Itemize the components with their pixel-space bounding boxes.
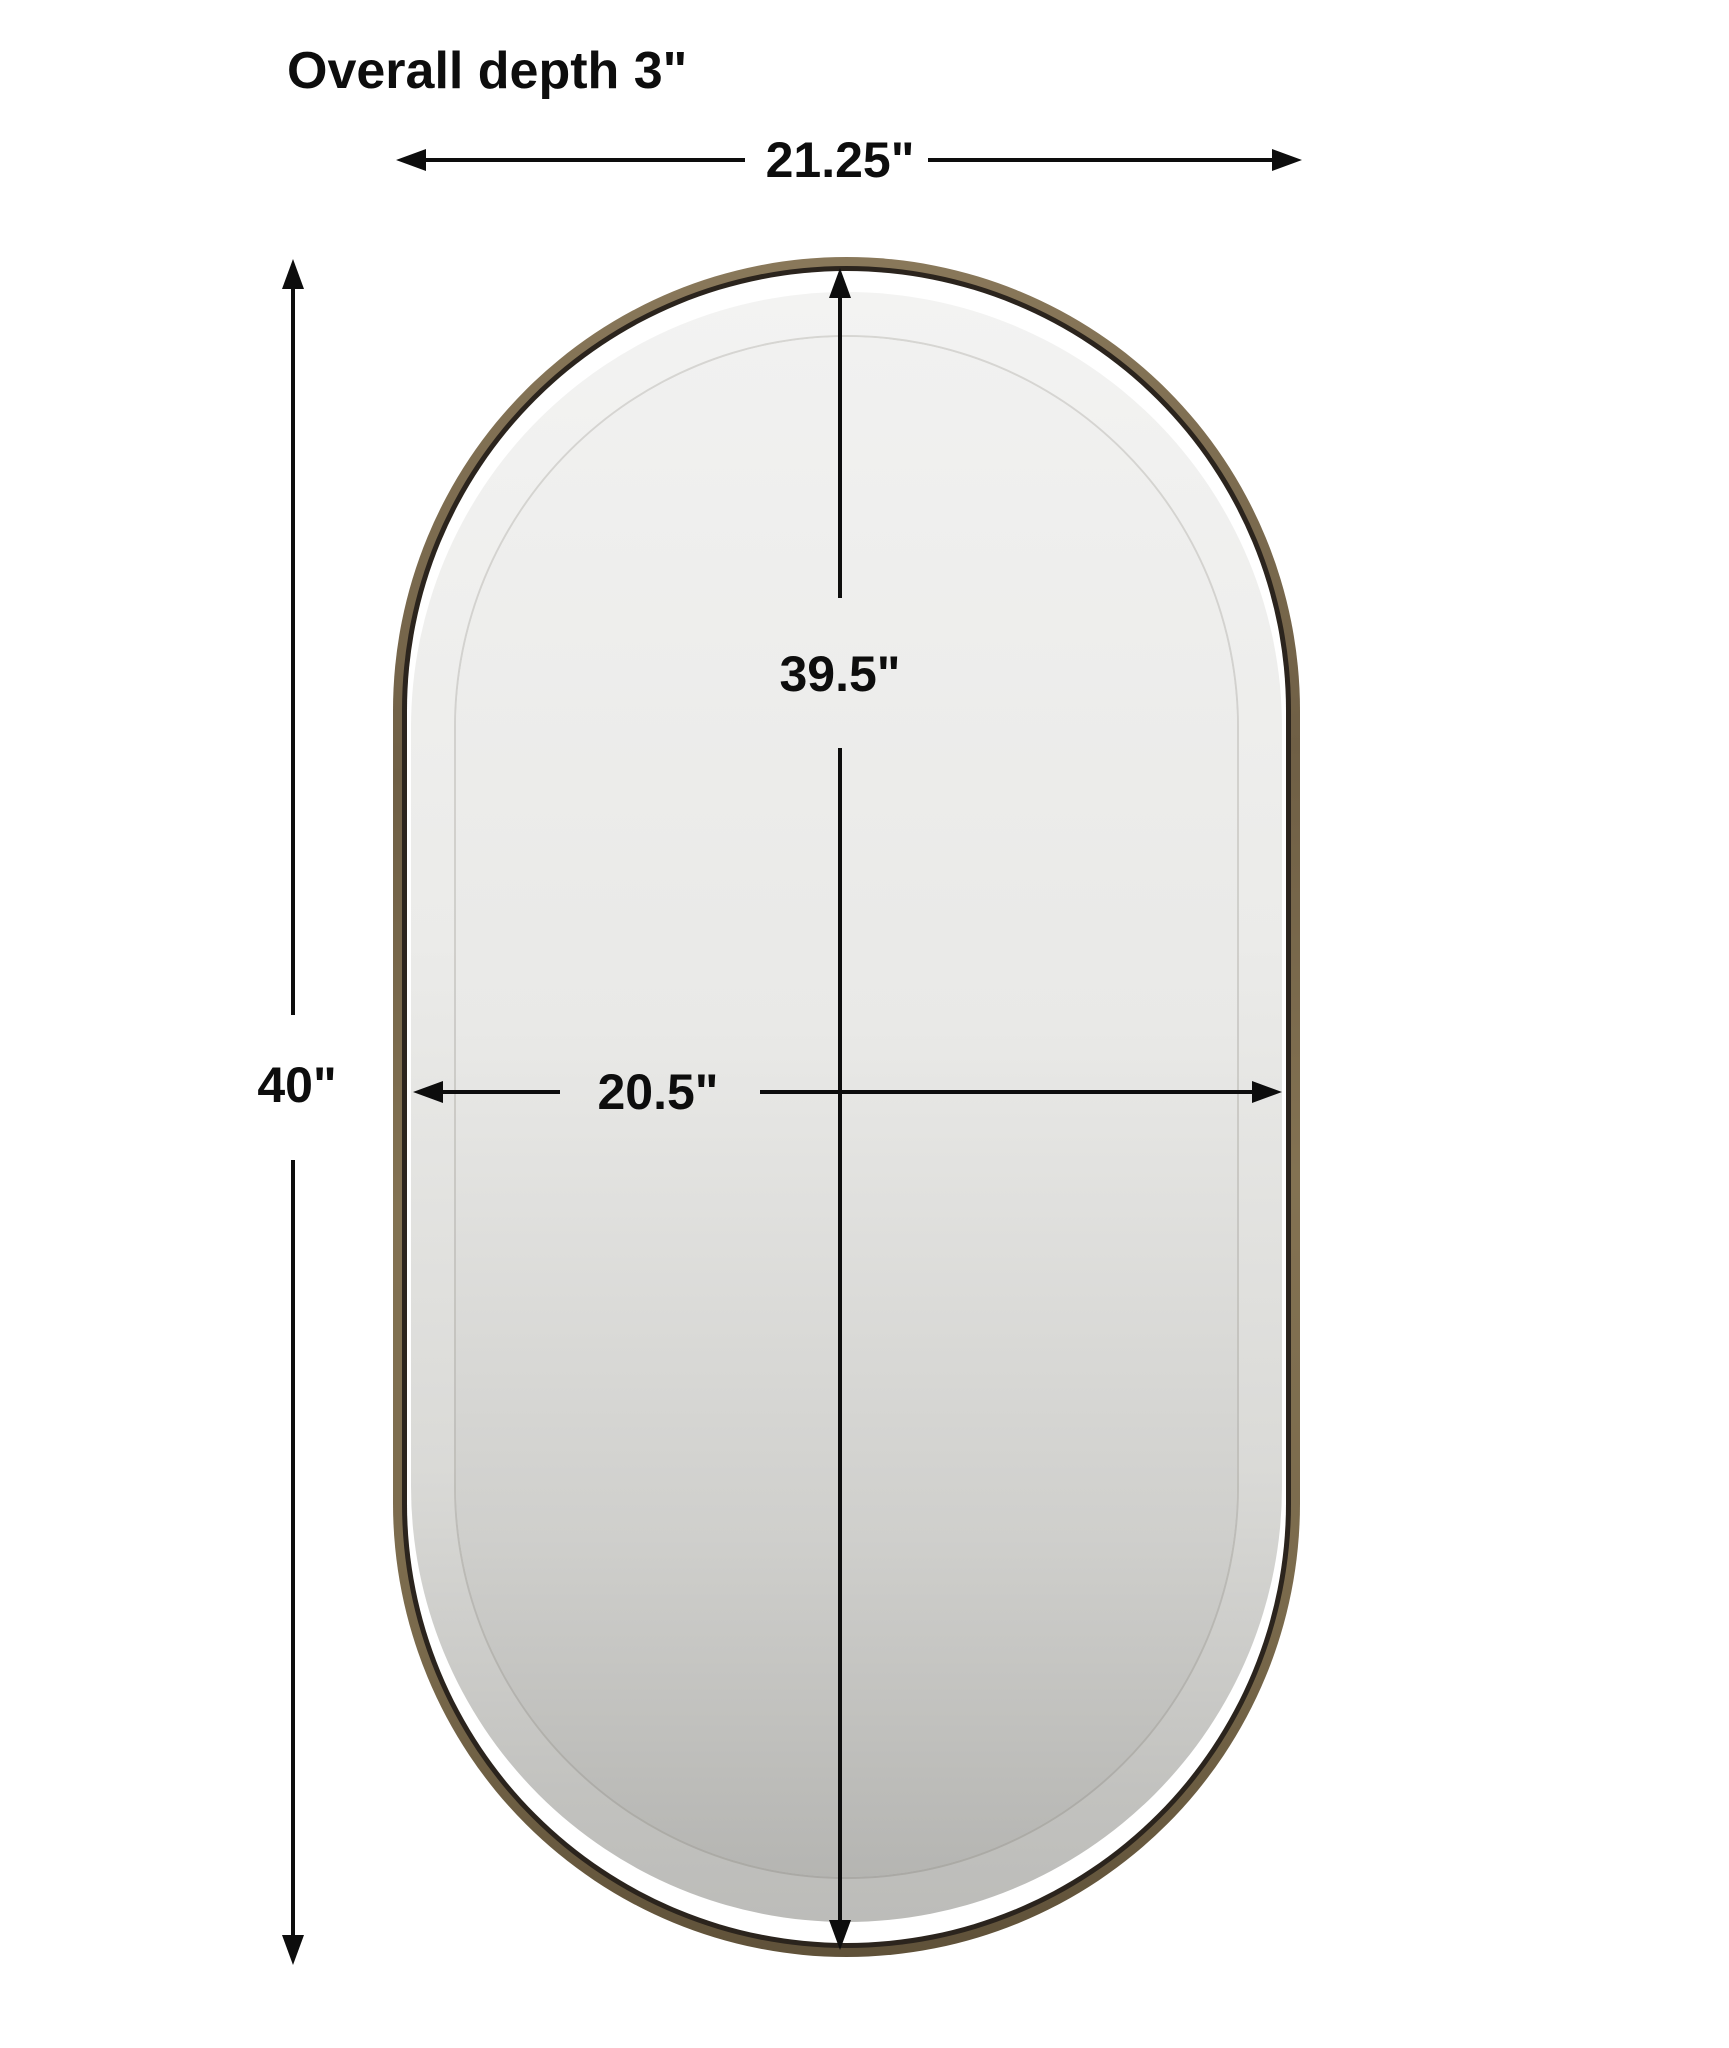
- dimension-diagram: Overall depth 3" 21.25" 40" 39.5" 20.5": [0, 0, 1729, 2048]
- dim-line-segment: [760, 1090, 1254, 1094]
- arrowhead-left-icon: [396, 149, 426, 171]
- dim-line-segment: [838, 748, 842, 1922]
- arrowhead-right-icon: [1252, 1081, 1282, 1103]
- arrowhead-down-icon: [282, 1935, 304, 1965]
- arrowhead-down-icon: [829, 1920, 851, 1950]
- dim-line-segment: [424, 158, 745, 162]
- glass-height-label: 39.5": [740, 646, 940, 702]
- arrowhead-up-icon: [829, 268, 851, 298]
- dim-line-segment: [838, 296, 842, 598]
- dim-line-segment: [291, 287, 295, 1015]
- arrowhead-up-icon: [282, 259, 304, 289]
- dim-line-segment: [441, 1090, 560, 1094]
- glass-width-label: 20.5": [548, 1064, 768, 1120]
- overall-width-label: 21.25": [730, 132, 950, 188]
- overall-depth-label: Overall depth 3": [287, 42, 687, 100]
- arrowhead-right-icon: [1272, 149, 1302, 171]
- arrowhead-left-icon: [413, 1081, 443, 1103]
- dim-line-segment: [291, 1160, 295, 1937]
- dim-line-segment: [928, 158, 1274, 162]
- overall-height-label: 40": [197, 1057, 397, 1113]
